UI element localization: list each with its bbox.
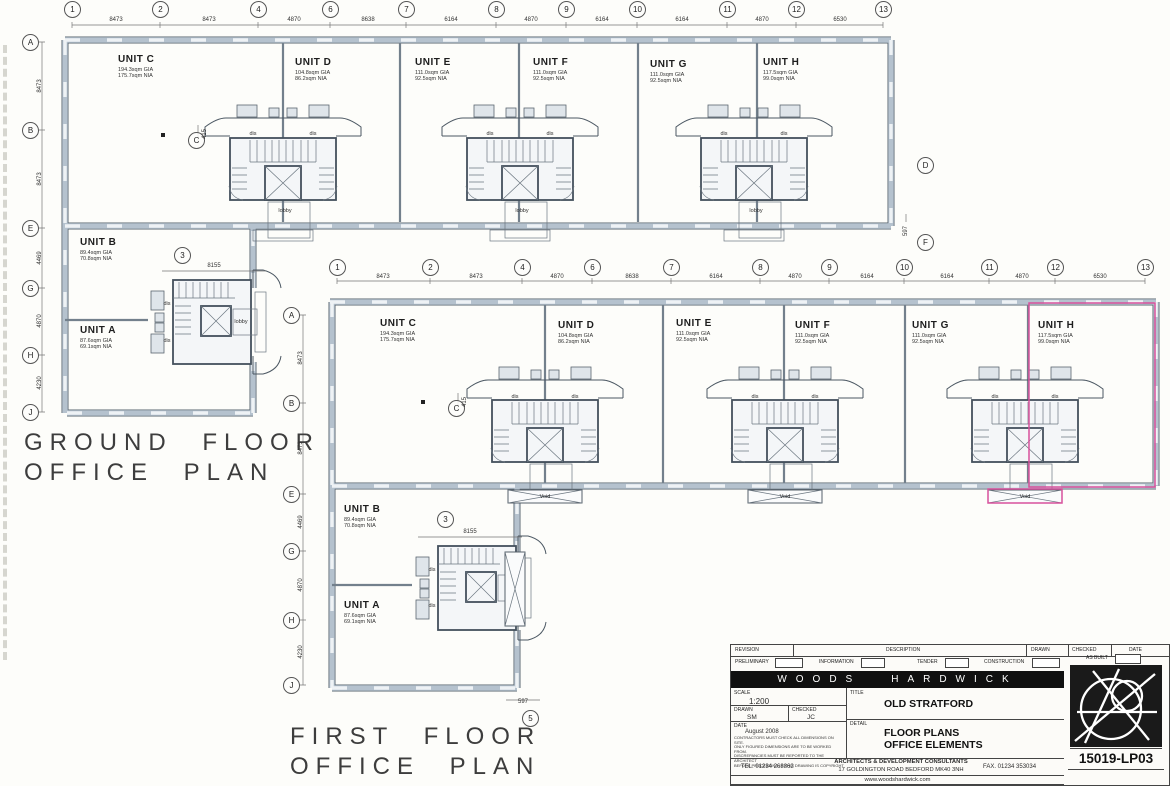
unit-gia: 194.3sqm GIA (118, 67, 154, 74)
grid-bubble-12: 12 (788, 1, 805, 18)
core-annotation-dis: dis (780, 131, 787, 137)
unit-name: UNIT A (80, 325, 116, 338)
unit-nia: 175.7sqm NIA (380, 337, 416, 344)
core-annotation-dis: dis (546, 131, 553, 137)
core-annotation-void: Void (540, 494, 551, 500)
grid-bubble-8: 8 (752, 259, 769, 276)
unit-nia: 175.7sqm NIA (118, 73, 154, 80)
core-annotation-lobby: lobby (749, 208, 762, 214)
unit-nia: 99.0sqm NIA (763, 76, 799, 83)
core-annotation-dis: dis (811, 394, 818, 400)
dimension-text: 4230 (37, 376, 43, 389)
checked-label: CHECKED (792, 707, 816, 713)
unit-name: UNIT G (912, 320, 949, 333)
dimension-text: 8155 (463, 529, 476, 535)
plan-title-line2: OFFICE PLAN (24, 458, 320, 488)
unit-nia: 69.1sqm NIA (344, 619, 380, 626)
core-annotation-lobby: lobby (515, 208, 528, 214)
unit-nia: 70.8sqm NIA (80, 256, 116, 263)
unit-name: UNIT F (795, 320, 830, 333)
plan-title-line1: GROUND FLOOR (24, 428, 320, 458)
unit-nia: 92.5sqm NIA (533, 76, 568, 83)
grid-bubble-H: H (283, 612, 300, 629)
grid-bubble-10: 10 (896, 259, 913, 276)
unit-name: UNIT H (1038, 320, 1074, 333)
project-title: OLD STRATFORD (884, 698, 973, 710)
unit-label-unit-h: UNIT H117.5sqm GIA99.0sqm NIA (1038, 320, 1074, 346)
description-label: DESCRIPTION (886, 647, 920, 653)
core-annotation-dis: dis (571, 394, 578, 400)
drawn-label: DRAWN (734, 707, 753, 713)
unit-label-unit-e: UNIT E111.0sqm GIA92.5sqm NIA (415, 57, 451, 83)
grid-bubble-B: B (22, 122, 39, 139)
title-label: TITLE (850, 690, 864, 696)
unit-name: UNIT A (344, 600, 380, 613)
plan-title-line2: OFFICE PLAN (290, 752, 541, 782)
unit-gia: 111.0sqm GIA (676, 331, 712, 338)
ground-floor-title: GROUND FLOOROFFICE PLAN (24, 428, 320, 488)
unit-nia: 70.8sqm NIA (344, 523, 380, 530)
first-floor-title: FIRST FLOOROFFICE PLAN (290, 722, 541, 782)
dimension-text: 415 (462, 397, 468, 407)
unit-gia: 117.5sqm GIA (763, 70, 799, 77)
core-annotation-dis: dis (163, 338, 170, 344)
grid-bubble-2: 2 (152, 1, 169, 18)
core-annotation-lobby: lobby (278, 208, 291, 214)
unit-gia: 104.8sqm GIA (295, 70, 331, 77)
status-information: INFORMATION (819, 659, 854, 665)
core-annotation-dis: dis (991, 394, 998, 400)
grid-bubble-3: 3 (437, 511, 454, 528)
unit-nia: 92.5sqm NIA (650, 78, 687, 85)
unit-gia: 104.8sqm GIA (558, 333, 594, 340)
grid-bubble-3: 3 (174, 247, 191, 264)
grid-bubble-1: 1 (329, 259, 346, 276)
unit-label-unit-b: UNIT B89.4sqm GIA70.8sqm NIA (344, 504, 380, 530)
unit-label-unit-c: UNIT C194.3sqm GIA175.7sqm NIA (118, 54, 154, 80)
telephone: TEL. 01234 268862 (741, 764, 794, 770)
drawing-number: 15019-LP03 (1068, 751, 1164, 766)
firm-word-1: WOODS (777, 674, 861, 685)
unit-nia: 86.2sqm NIA (295, 76, 331, 83)
revision-label: REVISION (735, 647, 759, 653)
core-annotation-void: Void (1020, 494, 1031, 500)
scale-label: SCALE (734, 690, 750, 696)
unit-name: UNIT C (118, 54, 154, 67)
core-annotation-dis: dis (309, 131, 316, 137)
grid-bubble-4: 4 (250, 1, 267, 18)
unit-nia: 86.2sqm NIA (558, 339, 594, 346)
dimension-text: 597 (518, 699, 528, 705)
unit-name: UNIT B (344, 504, 380, 517)
grid-bubble-A: A (283, 307, 300, 324)
unit-gia: 87.6sqm GIA (80, 338, 116, 345)
dimension-text: 415 (202, 129, 208, 139)
grid-bubble-J: J (22, 404, 39, 421)
unit-name: UNIT F (533, 57, 568, 70)
drawn-col-label: DRAWN (1031, 647, 1050, 653)
grid-bubble-2: 2 (422, 259, 439, 276)
unit-label-unit-d: UNIT D104.8sqm GIA86.2sqm NIA (558, 320, 594, 346)
dimension-text: 6164 (940, 274, 953, 280)
unit-gia: 89.4sqm GIA (80, 250, 116, 257)
dimension-text: 8473 (37, 79, 43, 92)
detail-label: DETAIL (850, 721, 867, 727)
website: www.woodshardwick.com (731, 777, 1064, 783)
unit-label-unit-h: UNIT H117.5sqm GIA99.0sqm NIA (763, 57, 799, 83)
grid-bubble-10: 10 (629, 1, 646, 18)
unit-gia: 111.0sqm GIA (912, 333, 949, 340)
grid-bubble-13: 13 (1137, 259, 1154, 276)
grid-bubble-9: 9 (821, 259, 838, 276)
grid-bubble-12: 12 (1047, 259, 1064, 276)
grid-bubble-11: 11 (719, 1, 736, 18)
consultants-line1: ARCHITECTS & DEVELOPMENT CONSULTANTS (826, 759, 976, 765)
dimension-text: 4870 (550, 274, 563, 280)
unit-label-unit-c: UNIT C194.3sqm GIA175.7sqm NIA (380, 318, 416, 344)
dimension-text: 4870 (298, 578, 304, 591)
dimension-text: 8638 (625, 274, 638, 280)
unit-nia: 92.5sqm NIA (795, 339, 830, 346)
unit-name: UNIT B (80, 237, 116, 250)
unit-gia: 111.0sqm GIA (650, 72, 687, 79)
dimension-text: 4870 (524, 17, 537, 23)
status-as-built: AS BUILT (1086, 655, 1108, 661)
core-annotation-dis: dis (751, 394, 758, 400)
unit-nia: 92.5sqm NIA (415, 76, 451, 83)
dimension-text: 6530 (833, 17, 846, 23)
dimension-text: 4870 (755, 17, 768, 23)
unit-gia: 117.5sqm GIA (1038, 333, 1074, 340)
unit-name: UNIT E (415, 57, 451, 70)
drawing-title-line2: OFFICE ELEMENTS (884, 739, 983, 751)
grid-bubble-G: G (283, 543, 300, 560)
grid-bubble-9: 9 (558, 1, 575, 18)
status-construction: CONSTRUCTION (984, 659, 1024, 665)
dimension-text: 4870 (287, 17, 300, 23)
dimension-text: 8473 (469, 274, 482, 280)
unit-name: UNIT D (295, 57, 331, 70)
unit-name: UNIT E (676, 318, 712, 331)
dimension-text: 8473 (376, 274, 389, 280)
core-annotation-dis: dis (1051, 394, 1058, 400)
unit-gia: 87.6sqm GIA (344, 613, 380, 620)
status-tender: TENDER (917, 659, 938, 665)
unit-name: UNIT C (380, 318, 416, 331)
dimension-text: 597 (903, 226, 909, 236)
core-annotation-dis: dis (486, 131, 493, 137)
firm-word-2: HARDWICK (891, 674, 1017, 685)
dimension-text: 8473 (109, 17, 122, 23)
drawn-value: SM (747, 714, 757, 721)
dimension-text: 6164 (595, 17, 608, 23)
grid-bubble-A: A (22, 34, 39, 51)
unit-label-unit-b: UNIT B89.4sqm GIA70.8sqm NIA (80, 237, 116, 263)
date-col-label: DATE (1129, 647, 1142, 653)
unit-name: UNIT D (558, 320, 594, 333)
unit-gia: 89.4sqm GIA (344, 517, 380, 524)
core-annotation-dis: dis (511, 394, 518, 400)
grid-bubble-F: F (917, 234, 934, 251)
plan-title-line1: FIRST FLOOR (290, 722, 541, 752)
grid-bubble-13: 13 (875, 1, 892, 18)
dimension-text: 8638 (361, 17, 374, 23)
globe-logo-icon (1070, 665, 1162, 747)
grid-bubble-B: B (283, 395, 300, 412)
fax: FAX. 01234 353034 (983, 764, 1036, 770)
dimension-text: 6530 (1093, 274, 1106, 280)
drawing-title-line1: FLOOR PLANS (884, 727, 959, 739)
core-annotation-lobby: lobby (234, 319, 247, 325)
unit-nia: 69.1sqm NIA (80, 344, 116, 351)
unit-label-unit-e: UNIT E111.0sqm GIA92.5sqm NIA (676, 318, 712, 344)
dimension-text: 8473 (298, 351, 304, 364)
unit-label-unit-a: UNIT A87.6sqm GIA69.1sqm NIA (344, 600, 380, 626)
unit-label-unit-f: UNIT F111.0sqm GIA92.5sqm NIA (533, 57, 568, 83)
unit-nia: 92.5sqm NIA (912, 339, 949, 346)
unit-gia: 111.0sqm GIA (795, 333, 830, 340)
title-block: REVISION DESCRIPTION DRAWN CHECKED DATE … (730, 644, 1170, 786)
dimension-text: 6164 (860, 274, 873, 280)
dimension-text: 4469 (298, 515, 304, 528)
unit-nia: 92.5sqm NIA (676, 337, 712, 344)
core-annotation-dis: dis (428, 567, 435, 573)
unit-name: UNIT G (650, 59, 687, 72)
dimension-text: 8473 (202, 17, 215, 23)
core-annotation-dis: dis (428, 603, 435, 609)
dimension-text: 8473 (298, 441, 304, 454)
dimension-text: 6164 (709, 274, 722, 280)
dimension-text: 4230 (298, 645, 304, 658)
dimension-text: 8155 (207, 263, 220, 269)
checked-value: JC (807, 714, 815, 721)
grid-bubble-6: 6 (322, 1, 339, 18)
grid-bubble-8: 8 (488, 1, 505, 18)
firm-name-banner: WOODS HARDWICK (731, 671, 1064, 688)
dimension-text: 4870 (788, 274, 801, 280)
core-annotation-dis: dis (720, 131, 727, 137)
grid-bubble-E: E (283, 486, 300, 503)
dimension-text: 4870 (37, 314, 43, 327)
unit-label-unit-d: UNIT D104.8sqm GIA86.2sqm NIA (295, 57, 331, 83)
grid-bubble-D: D (917, 157, 934, 174)
unit-nia: 99.0sqm NIA (1038, 339, 1074, 346)
dimension-text: 4870 (1015, 274, 1028, 280)
unit-label-unit-a: UNIT A87.6sqm GIA69.1sqm NIA (80, 325, 116, 351)
grid-bubble-11: 11 (981, 259, 998, 276)
dimension-text: 8473 (37, 172, 43, 185)
dimension-text: 6164 (675, 17, 688, 23)
unit-gia: 194.3sqm GIA (380, 331, 416, 338)
grid-bubble-E: E (22, 220, 39, 237)
unit-name: UNIT H (763, 57, 799, 70)
checked-col-label: CHECKED (1072, 647, 1096, 653)
unit-label-unit-g: UNIT G111.0sqm GIA92.5sqm NIA (912, 320, 949, 346)
grid-bubble-7: 7 (663, 259, 680, 276)
grid-bubble-J: J (283, 677, 300, 694)
dimension-text: 4469 (37, 251, 43, 264)
unit-gia: 111.0sqm GIA (533, 70, 568, 77)
drawing-sheet: 124678910111213ABEGHJDF3C847384734870863… (0, 0, 1170, 785)
core-annotation-dis: dis (249, 131, 256, 137)
dimension-text: 6164 (444, 17, 457, 23)
firm-logo (1070, 665, 1162, 747)
unit-label-unit-g: UNIT G111.0sqm GIA92.5sqm NIA (650, 59, 687, 85)
grid-bubble-1: 1 (64, 1, 81, 18)
grid-bubble-6: 6 (584, 259, 601, 276)
core-annotation-void: Void (780, 494, 791, 500)
core-annotation-dis: dis (163, 301, 170, 307)
grid-bubble-4: 4 (514, 259, 531, 276)
unit-gia: 111.0sqm GIA (415, 70, 451, 77)
consultants-line2: 17 GOLDINGTON ROAD BEDFORD MK40 3NH (826, 767, 976, 773)
grid-bubble-7: 7 (398, 1, 415, 18)
grid-bubble-H: H (22, 347, 39, 364)
status-preliminary: PRELIMINARY (735, 659, 769, 665)
grid-bubble-G: G (22, 280, 39, 297)
unit-label-unit-f: UNIT F111.0sqm GIA92.5sqm NIA (795, 320, 830, 346)
